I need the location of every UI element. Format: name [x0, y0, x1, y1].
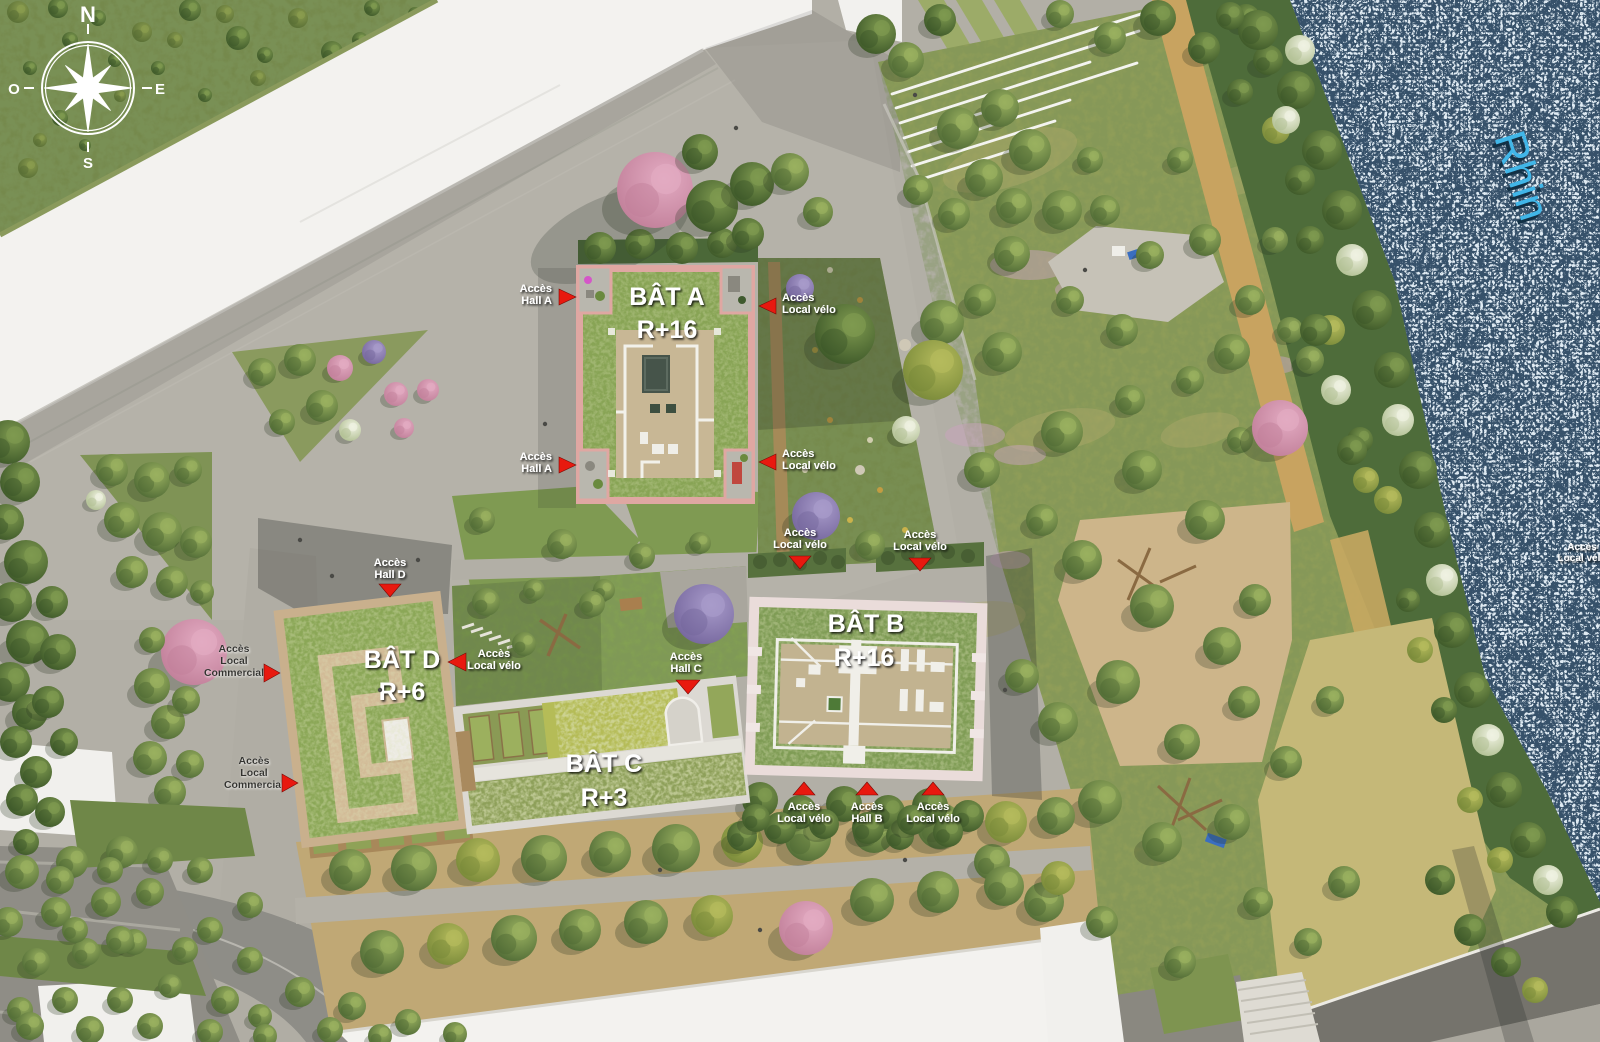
- svg-text:BÂT D: BÂT D: [364, 644, 440, 674]
- svg-text:Accès: Accès: [782, 292, 814, 304]
- svg-text:Local vélo: Local vélo: [1558, 553, 1600, 564]
- svg-text:Accès: Accès: [670, 651, 702, 663]
- svg-text:Accès: Accès: [917, 801, 949, 813]
- svg-text:R+16: R+16: [834, 644, 894, 672]
- svg-text:Commercial: Commercial: [224, 779, 284, 791]
- svg-text:Hall B: Hall B: [851, 813, 882, 825]
- svg-text:Accès: Accès: [782, 448, 814, 460]
- svg-text:Hall C: Hall C: [670, 663, 701, 675]
- svg-text:Local vélo: Local vélo: [906, 813, 960, 825]
- svg-text:Local: Local: [220, 655, 248, 667]
- svg-text:Accès: Accès: [784, 527, 816, 539]
- svg-text:Accès: Accès: [851, 801, 883, 813]
- svg-text:Commercial: Commercial: [204, 667, 264, 679]
- svg-text:BÂT A: BÂT A: [629, 281, 704, 311]
- svg-text:Hall D: Hall D: [374, 569, 405, 581]
- svg-text:R+16: R+16: [637, 316, 697, 344]
- svg-text:Accès: Accès: [520, 451, 552, 463]
- svg-text:O: O: [8, 81, 20, 98]
- svg-text:Local vélo: Local vélo: [467, 660, 521, 672]
- svg-text:S: S: [83, 155, 93, 172]
- svg-text:BÂT C: BÂT C: [566, 748, 642, 778]
- svg-text:Accès: Accès: [219, 643, 250, 655]
- svg-text:Accès: Accès: [520, 283, 552, 295]
- svg-text:N: N: [80, 2, 96, 27]
- svg-text:Accès: Accès: [788, 801, 820, 813]
- svg-text:Local vélo: Local vélo: [782, 304, 836, 316]
- svg-text:Local vélo: Local vélo: [782, 460, 836, 472]
- svg-text:BÂT B: BÂT B: [828, 608, 904, 638]
- svg-text:Accès: Accès: [1567, 542, 1597, 553]
- svg-text:Accès: Accès: [478, 648, 510, 660]
- svg-text:Local vélo: Local vélo: [777, 813, 831, 825]
- svg-text:Accès: Accès: [374, 557, 406, 569]
- svg-text:R+6: R+6: [379, 678, 426, 706]
- svg-text:Local vélo: Local vélo: [893, 541, 947, 553]
- svg-text:Hall A: Hall A: [521, 295, 552, 307]
- svg-text:Accès: Accès: [239, 755, 270, 767]
- svg-text:Accès: Accès: [904, 529, 936, 541]
- svg-text:Local: Local: [240, 767, 268, 779]
- svg-text:R+3: R+3: [581, 784, 628, 812]
- svg-text:Hall A: Hall A: [521, 463, 552, 475]
- svg-text:E: E: [155, 81, 165, 98]
- svg-text:Local vélo: Local vélo: [773, 539, 827, 551]
